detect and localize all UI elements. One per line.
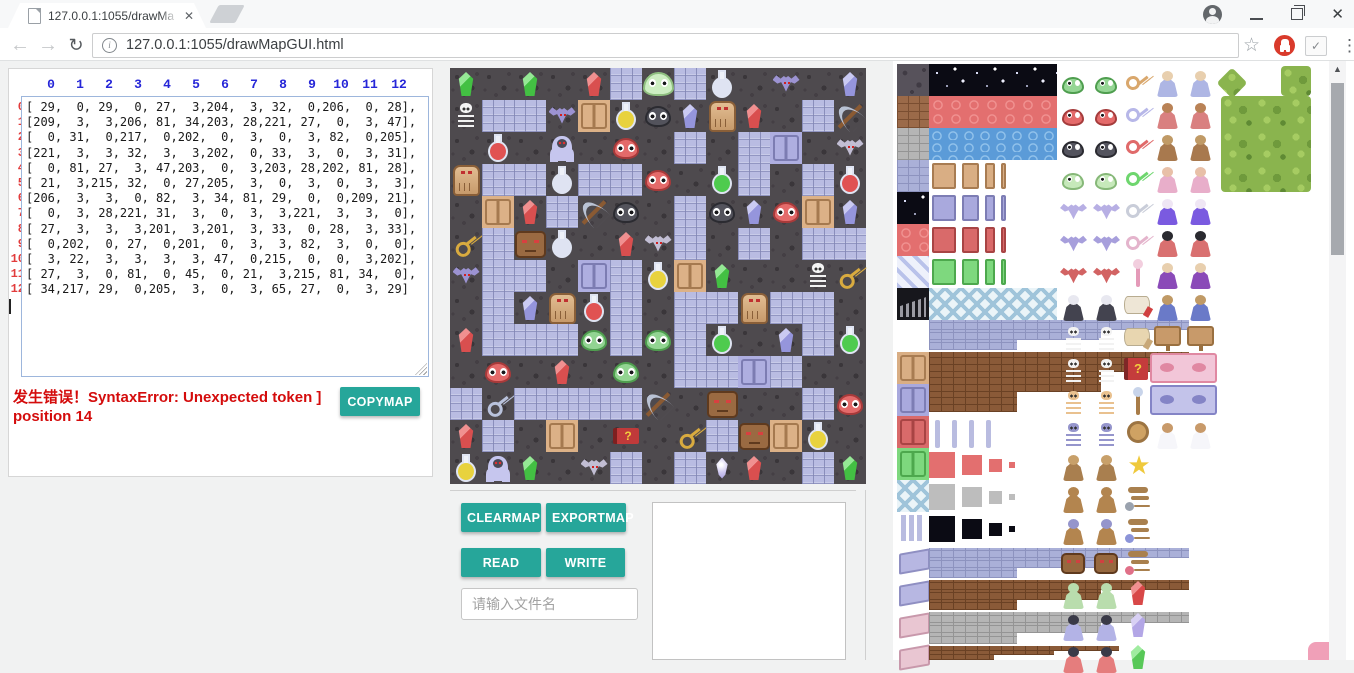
map-tile-12-12-gem[interactable] (834, 452, 866, 484)
map-tile-0-0-gem[interactable] (450, 68, 482, 100)
map-tile-10-10-floor[interactable] (770, 388, 802, 420)
map-tile-7-5-wall[interactable] (610, 292, 642, 324)
map-tile-9-8-wall[interactable] (706, 356, 738, 388)
tile-door-green[interactable] (897, 448, 929, 480)
terrace-blue-strip (929, 340, 1017, 350)
map-tile-0-6-jelly[interactable] (642, 68, 674, 100)
map-tile-2-5-slime[interactable] (610, 132, 642, 164)
item-medal-wood[interactable] (1124, 419, 1154, 449)
browser-tab[interactable]: 127.0.0.1:1055/drawMa ✕ (8, 3, 206, 28)
tile-door-purple[interactable] (897, 384, 929, 416)
map-tile-10-2-wall[interactable] (514, 388, 546, 420)
map-tile-5-8-floor[interactable] (706, 228, 738, 260)
bat-grey-sprite (581, 459, 608, 478)
map-tile-9-4-floor[interactable] (578, 356, 610, 388)
tile-bluecobble[interactable] (897, 160, 929, 192)
map-tile-3-4-wall[interactable] (578, 164, 610, 196)
shrink-grey-frame (962, 487, 982, 507)
map-tile-7-8-wall[interactable] (706, 292, 738, 324)
golem-sprite (549, 293, 576, 324)
pair-wizard-purple[interactable] (1152, 195, 1216, 225)
map-tile-1-7-gem[interactable] (674, 100, 706, 132)
read-button[interactable]: READ (461, 548, 541, 577)
map-tile-11-10-door[interactable] (770, 420, 802, 452)
map-tile-5-12-wall[interactable] (834, 228, 866, 260)
shrink-red[interactable] (929, 452, 1064, 482)
map-tile-11-2-floor[interactable] (514, 420, 546, 452)
map-tile-11-5-book[interactable]: ? (610, 420, 642, 452)
map-canvas[interactable]: ? (450, 68, 866, 484)
map-tile-2-6-floor[interactable] (642, 132, 674, 164)
map-tile-12-11-wall[interactable] (802, 452, 834, 484)
map-tile-4-3-wall[interactable] (546, 196, 578, 228)
map-tile-4-12-gem[interactable] (834, 196, 866, 228)
pair-fairy-pink[interactable] (1152, 163, 1216, 193)
row-pillars[interactable] (929, 414, 1069, 450)
tile-starfield[interactable] (897, 192, 929, 224)
pair-stone-face[interactable] (1058, 547, 1122, 577)
potion-yellow-sprite (808, 429, 828, 450)
map-tile-9-12-floor[interactable] (834, 356, 866, 388)
map-tile-5-3-potion[interactable] (546, 228, 578, 260)
item-book-question[interactable]: ? (1124, 358, 1148, 380)
item-wing-red[interactable] (1124, 547, 1154, 577)
map-tile-5-5-gem[interactable] (610, 228, 642, 260)
map-tile-9-10-wall[interactable] (770, 356, 802, 388)
tile-fallen-pink-2[interactable] (897, 640, 929, 660)
map-tile-8-2-wall[interactable] (514, 324, 546, 356)
map-tile-8-7-wall[interactable] (674, 324, 706, 356)
map-tile-12-3-floor[interactable] (546, 452, 578, 484)
map-tile-0-10-bat[interactable] (770, 68, 802, 100)
map-tile-6-8-gem[interactable] (706, 260, 738, 292)
pair-bat-large[interactable] (1058, 227, 1122, 257)
map-tile-11-7-key[interactable] (674, 420, 706, 452)
pair-golem-brown[interactable] (1058, 483, 1122, 513)
map-tile-5-10-floor[interactable] (770, 228, 802, 260)
pair-slime-black[interactable] (1058, 131, 1122, 161)
map-tile-3-11-wall[interactable] (802, 164, 834, 196)
map-tile-10-3-wall[interactable] (546, 388, 578, 420)
pair-merchant-red[interactable] (1152, 99, 1216, 129)
map-tile-8-1-wall[interactable] (482, 324, 514, 356)
map-tile-12-0-potion[interactable] (450, 452, 482, 484)
map-tile-8-4-slime[interactable] (578, 324, 610, 356)
map-tile-10-9-floor[interactable] (738, 388, 770, 420)
map-tile-6-1-wall[interactable] (482, 260, 514, 292)
map-tile-6-11-skel[interactable] (802, 260, 834, 292)
band-water[interactable] (929, 128, 1057, 160)
address-bar[interactable]: i 127.0.0.1:1055/drawMapGUI.html (92, 33, 1239, 58)
shrink-black[interactable] (929, 516, 1064, 546)
map-tile-9-0-floor[interactable] (450, 356, 482, 388)
map-tile-9-11-floor[interactable] (802, 356, 834, 388)
tile-stairs-dark[interactable] (897, 288, 929, 320)
map-tile-9-9-door[interactable] (738, 356, 770, 388)
map-tile-2-11-floor[interactable] (802, 132, 834, 164)
map-tile-0-5-wall[interactable] (610, 68, 642, 100)
map-tile-0-7-wall[interactable] (674, 68, 706, 100)
map-tile-12-5-wall[interactable] (610, 452, 642, 484)
item-wand-pink[interactable] (1124, 259, 1154, 289)
pair-wizard-purple-sprite (1154, 198, 1181, 225)
gem-blue-sprite (842, 72, 858, 96)
map-tile-0-8-potion[interactable] (706, 68, 738, 100)
map-tile-7-1-wall[interactable] (482, 292, 514, 324)
doors-purple[interactable] (929, 192, 1057, 224)
item-key-pink[interactable] (1124, 227, 1154, 257)
map-tile-9-7-wall[interactable] (674, 356, 706, 388)
map-tile-7-9-golem[interactable] (738, 292, 770, 324)
map-tile-3-1-wall[interactable] (482, 164, 514, 196)
map-tile-0-11-floor[interactable] (802, 68, 834, 100)
profile-icon[interactable] (1203, 5, 1222, 24)
minimize-button[interactable] (1250, 18, 1263, 20)
map-tile-1-6-slime[interactable] (642, 100, 674, 132)
reload-icon[interactable]: ↻ (64, 33, 88, 57)
exportmap-button[interactable]: EXPORTMAP (546, 503, 626, 532)
map-tile-10-5-wall[interactable] (610, 388, 642, 420)
scrollbar-thumb[interactable] (1331, 83, 1344, 255)
pair-skeleton-shield[interactable] (1058, 387, 1122, 417)
back-icon[interactable]: ← (8, 33, 32, 57)
map-tile-8-12-potion[interactable] (834, 324, 866, 356)
pair-sign-wood[interactable] (1152, 323, 1216, 353)
bush-square[interactable] (1281, 66, 1311, 96)
map-tile-3-3-potion[interactable] (546, 164, 578, 196)
map-tile-11-3-door[interactable] (546, 420, 578, 452)
map-tile-4-7-wall[interactable] (674, 196, 706, 228)
map-tile-4-1-door[interactable] (482, 196, 514, 228)
map-tile-5-9-wall[interactable] (738, 228, 770, 260)
pair-ghost-blue[interactable] (1058, 611, 1122, 641)
map-tile-7-0-floor[interactable] (450, 292, 482, 324)
slime-dark-sprite (613, 202, 639, 223)
map-tile-2-4-floor[interactable] (578, 132, 610, 164)
pair-bat-lavender[interactable] (1058, 195, 1122, 225)
pair-slime-red[interactable] (1058, 99, 1122, 129)
tile-greystone[interactable] (897, 128, 929, 160)
band-lattice[interactable] (929, 288, 1057, 320)
tile-fallen-blue-2[interactable] (897, 576, 929, 608)
map-tile-3-6-slime[interactable] (642, 164, 674, 196)
pair-golem-shield[interactable] (1058, 515, 1122, 545)
pair-vampire-sprite (1060, 294, 1087, 321)
map-tile-1-11-wall[interactable] (802, 100, 834, 132)
tile-pillar[interactable] (897, 512, 929, 544)
item-scroll-tan[interactable] (1124, 328, 1150, 346)
map-tile-11-12-floor[interactable] (834, 420, 866, 452)
pair-knight-brown[interactable] (1058, 451, 1122, 481)
write-button[interactable]: WRITE (546, 548, 625, 577)
map-tile-6-5-wall[interactable] (610, 260, 642, 292)
restore-button[interactable] (1291, 8, 1303, 20)
clearmap-button[interactable]: CLEARMAP (461, 503, 541, 532)
pair-merchant-red-sprite (1154, 102, 1181, 129)
map-tile-7-6-floor[interactable] (642, 292, 674, 324)
pair-squire-blue[interactable] (1152, 291, 1216, 321)
text-caret (9, 299, 11, 314)
map-tile-4-8-slime[interactable] (706, 196, 738, 228)
map-tile-8-5-wall[interactable] (610, 324, 642, 356)
map-tile-7-7-wall[interactable] (674, 292, 706, 324)
item-gem-red[interactable] (1124, 579, 1154, 609)
map-tile-10-7-floor[interactable] (674, 388, 706, 420)
map-tile-0-4-gem[interactable] (578, 68, 610, 100)
map-tile-6-6-potion[interactable] (642, 260, 674, 292)
map-tile-4-6-floor[interactable] (642, 196, 674, 228)
map-tile-7-11-wall[interactable] (802, 292, 834, 324)
map-tile-3-9-wall[interactable] (738, 164, 770, 196)
doors-tan[interactable] (929, 160, 1057, 192)
shrink-grey[interactable] (929, 484, 1064, 514)
doors-green[interactable] (929, 256, 1057, 288)
map-tile-2-9-wall[interactable] (738, 132, 770, 164)
map-tile-11-6-floor[interactable] (642, 420, 674, 452)
gem-red-sprite (586, 72, 602, 96)
map-tile-8-10-gem[interactable] (770, 324, 802, 356)
map-tile-7-4-potion[interactable] (578, 292, 610, 324)
map-tile-1-10-floor[interactable] (770, 100, 802, 132)
band-redground[interactable] (929, 96, 1057, 128)
map-tile-0-12-gem[interactable] (834, 68, 866, 100)
map-tile-10-12-slime[interactable] (834, 388, 866, 420)
map-tile-1-0-skel[interactable] (450, 100, 482, 132)
map-tile-1-1-wall[interactable] (482, 100, 514, 132)
new-tab-button[interactable] (209, 5, 245, 23)
pair-skeleton-armored[interactable] (1058, 419, 1122, 449)
info-icon[interactable]: i (102, 38, 117, 53)
item-wing-blue[interactable] (1124, 515, 1154, 545)
map-tile-8-11-wall[interactable] (802, 324, 834, 356)
map-tile-5-11-wall[interactable] (802, 228, 834, 260)
map-tile-3-0-golem[interactable] (450, 164, 482, 196)
pair-zombie-green[interactable] (1058, 579, 1122, 609)
map-tile-8-0-gem[interactable] (450, 324, 482, 356)
map-tile-6-7-door[interactable] (674, 260, 706, 292)
scrollbar-up-icon[interactable]: ▲ (1329, 61, 1346, 77)
pair-fighter-brown[interactable] (1152, 131, 1216, 161)
map-tile-1-3-bat[interactable] (546, 100, 578, 132)
item-gem-purple[interactable] (1124, 611, 1154, 641)
map-tile-10-11-wall[interactable] (802, 388, 834, 420)
tree-large[interactable] (1221, 96, 1311, 192)
map-tile-11-0-gem[interactable] (450, 420, 482, 452)
tile-redground[interactable] (897, 224, 929, 256)
item-star-gold[interactable]: ★ (1124, 451, 1154, 481)
map-tile-0-3-floor[interactable] (546, 68, 578, 100)
tile-door-red[interactable] (897, 416, 929, 448)
map-tile-5-2-face[interactable] (514, 228, 546, 260)
map-tile-6-10-floor[interactable] (770, 260, 802, 292)
pair-skeleton[interactable] (1058, 323, 1122, 353)
slime-red-sprite (645, 170, 671, 191)
pair-slime-green[interactable] (1058, 67, 1122, 97)
map-tile-1-4-door[interactable] (578, 100, 610, 132)
map-tile-12-10-floor[interactable] (770, 452, 802, 484)
map-tile-5-6-bat[interactable] (642, 228, 674, 260)
map-tile-6-9-floor[interactable] (738, 260, 770, 292)
map-tile-10-8-face[interactable] (706, 388, 738, 420)
map-tile-7-3-golem[interactable] (546, 292, 578, 324)
map-tile-12-4-bat[interactable] (578, 452, 610, 484)
map-tile-4-0-floor[interactable] (450, 196, 482, 228)
pair-zombie-green-sprite (1060, 582, 1087, 609)
map-tile-12-1-ghost[interactable] (482, 452, 514, 484)
map-tile-1-9-gem[interactable] (738, 100, 770, 132)
map-tile-11-9-face[interactable] (738, 420, 770, 452)
row-pillars-pillar (969, 420, 974, 448)
copymap-button[interactable]: COPYMAP (340, 387, 420, 416)
page-scrollbar[interactable]: ▲ (1329, 61, 1346, 660)
pair-vampire[interactable] (1058, 291, 1122, 321)
map-tile-2-7-wall[interactable] (674, 132, 706, 164)
map-tile-11-1-wall[interactable] (482, 420, 514, 452)
map-tile-12-6-floor[interactable] (642, 452, 674, 484)
map-tile-4-2-gem[interactable] (514, 196, 546, 228)
forward-icon[interactable]: → (36, 33, 60, 57)
map-tile-2-3-ghost[interactable] (546, 132, 578, 164)
browser-menu-icon[interactable]: ⋮ (1341, 34, 1354, 58)
pair-jelly-green[interactable] (1058, 163, 1122, 193)
map-tile-6-0-bat[interactable] (450, 260, 482, 292)
tile-brownbrick[interactable] (897, 96, 929, 128)
pair-cultist-red[interactable] (1152, 227, 1216, 257)
map-tile-8-3-wall[interactable] (546, 324, 578, 356)
map-tile-3-8-potion[interactable] (706, 164, 738, 196)
map-tile-11-8-wall[interactable] (706, 420, 738, 452)
map-tile-5-0-key[interactable] (450, 228, 482, 260)
map-tile-4-4-pick[interactable] (578, 196, 610, 228)
gem-green-sprite (522, 72, 538, 96)
map-tile-10-0-wall[interactable] (450, 388, 482, 420)
band-starfield[interactable] (929, 64, 1057, 96)
map-tile-5-7-wall[interactable] (674, 228, 706, 260)
map-tile-3-2-wall[interactable] (514, 164, 546, 196)
map-tile-4-5-slime[interactable] (610, 196, 642, 228)
doors-red[interactable] (929, 224, 1057, 256)
map-tile-7-12-floor[interactable] (834, 292, 866, 324)
item-scroll-red[interactable] (1124, 296, 1150, 314)
item-wing-grey[interactable] (1124, 483, 1154, 513)
pair-ghost-red[interactable] (1058, 643, 1122, 673)
shrink-red-frame (989, 459, 1002, 472)
map-tile-1-8-golem[interactable] (706, 100, 738, 132)
item-key-lavender[interactable] (1124, 99, 1154, 129)
map-tile-10-6-pick[interactable] (642, 388, 674, 420)
map-tile-2-2-floor[interactable] (514, 132, 546, 164)
pair-bat-red[interactable] (1058, 259, 1122, 289)
pair-princess[interactable] (1152, 417, 1216, 449)
extension-check-icon[interactable]: ✓ (1305, 36, 1327, 56)
map-tile-12-7-wall[interactable] (674, 452, 706, 484)
map-tile-9-3-gem[interactable] (546, 356, 578, 388)
map-tile-8-9-floor[interactable] (738, 324, 770, 356)
map-tile-0-2-gem[interactable] (514, 68, 546, 100)
tile-door-tan[interactable] (897, 352, 929, 384)
map-tile-9-1-slime[interactable] (482, 356, 514, 388)
map-tile-0-9-floor[interactable] (738, 68, 770, 100)
map-tile-2-0-floor[interactable] (450, 132, 482, 164)
item-key-tan[interactable] (1124, 67, 1154, 97)
textarea-resize-handle[interactable] (415, 363, 427, 375)
map-tile-1-5-potion[interactable] (610, 100, 642, 132)
map-tile-11-4-floor[interactable] (578, 420, 610, 452)
map-tile-7-10-wall[interactable] (770, 292, 802, 324)
map-tile-6-12-key[interactable] (834, 260, 866, 292)
item-key-green[interactable] (1124, 163, 1154, 193)
map-tile-8-8-potion[interactable] (706, 324, 738, 356)
map-tile-3-5-wall[interactable] (610, 164, 642, 196)
map-tile-6-3-floor[interactable] (546, 260, 578, 292)
map-tile-12-9-gem[interactable] (738, 452, 770, 484)
map-tile-12-8-orb[interactable] (706, 452, 738, 484)
map-tile-3-7-floor[interactable] (674, 164, 706, 196)
tile-fallen-pink[interactable] (897, 608, 929, 640)
item-gem-green[interactable] (1124, 643, 1154, 673)
pair-elder-blue[interactable] (1152, 67, 1216, 97)
item-key-grey[interactable] (1124, 195, 1154, 225)
map-tile-7-2-gem[interactable] (514, 292, 546, 324)
map-tile-2-8-floor[interactable] (706, 132, 738, 164)
tab-title: 127.0.0.1:1055/drawMa (48, 9, 178, 23)
map-tile-9-5-slime[interactable] (610, 356, 642, 388)
pair-king-purple-sprite (1187, 262, 1214, 289)
map-tile-12-2-gem[interactable] (514, 452, 546, 484)
map-tile-2-12-bat[interactable] (834, 132, 866, 164)
bookmark-star-icon[interactable]: ☆ (1243, 34, 1260, 57)
map-tile-5-1-wall[interactable] (482, 228, 514, 260)
map-tile-1-12-pick[interactable] (834, 100, 866, 132)
tile-diagstripes[interactable] (897, 256, 929, 288)
banner-purple[interactable] (1150, 385, 1217, 415)
tile-fallen-blue[interactable] (897, 544, 929, 576)
map-tile-3-10-floor[interactable] (770, 164, 802, 196)
adblock-extension-icon[interactable] (1274, 35, 1295, 56)
shrink-black-frame (1009, 526, 1015, 532)
map-tile-1-2-wall[interactable] (514, 100, 546, 132)
map-tile-4-10-slime[interactable] (770, 196, 802, 228)
map-tile-2-1-potion[interactable] (482, 132, 514, 164)
item-key-red[interactable] (1124, 131, 1154, 161)
map-tile-9-2-floor[interactable] (514, 356, 546, 388)
pair-vampire-sprite (1093, 294, 1120, 321)
map-tile-5-4-floor[interactable] (578, 228, 610, 260)
map-tile-8-6-slime[interactable] (642, 324, 674, 356)
pair-golem-brown-sprite (1093, 486, 1120, 513)
tile-lattice[interactable] (897, 480, 929, 512)
close-window-button[interactable]: ✕ (1331, 7, 1344, 22)
map-tile-6-2-wall[interactable] (514, 260, 546, 292)
map-tile-6-4-door[interactable] (578, 260, 610, 292)
matrix-textarea[interactable]: [ 29, 0, 29, 0, 27, 3,204, 3, 32, 0,206,… (21, 96, 429, 377)
filename-input[interactable] (461, 588, 638, 620)
map-tile-10-1-key[interactable] (482, 388, 514, 420)
pair-king-purple[interactable] (1152, 259, 1216, 289)
map-tile-4-9-gem[interactable] (738, 196, 770, 228)
map-tile-11-11-potion[interactable] (802, 420, 834, 452)
pair-skeleton-sword[interactable] (1058, 355, 1122, 385)
map-tile-9-6-floor[interactable] (642, 356, 674, 388)
tile-darkstone[interactable] (897, 64, 929, 96)
map-tile-10-4-wall[interactable] (578, 388, 610, 420)
banner-pink[interactable] (1150, 353, 1217, 383)
map-tile-3-12-potion[interactable] (834, 164, 866, 196)
map-tile-4-11-door[interactable] (802, 196, 834, 228)
map-tile-0-1-floor[interactable] (482, 68, 514, 100)
map-tile-2-10-door[interactable] (770, 132, 802, 164)
tab-close-icon[interactable]: ✕ (184, 10, 194, 22)
